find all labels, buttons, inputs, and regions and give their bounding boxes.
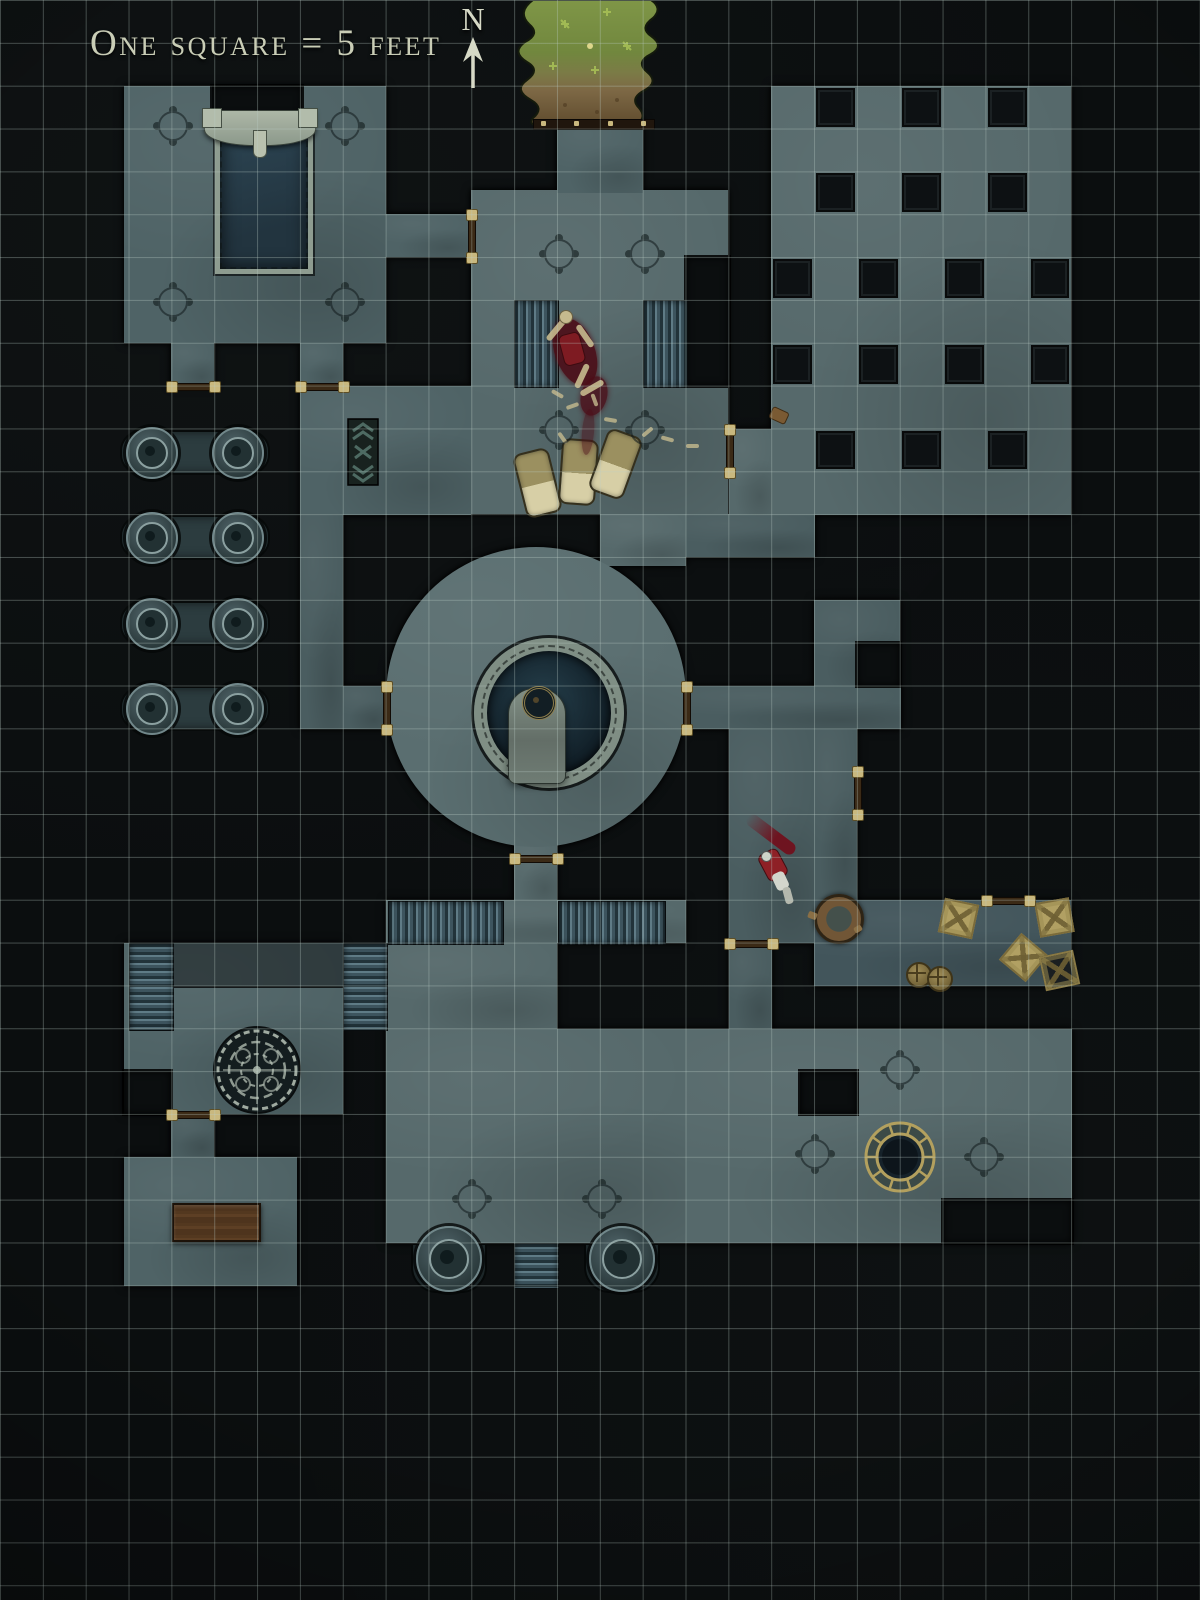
door-west-alcove-stud <box>166 381 178 393</box>
door-dais-east-stud <box>681 724 693 736</box>
door-storage-north-stud <box>981 895 993 907</box>
door-dais-west-stud <box>381 724 393 736</box>
square-pillar <box>818 175 853 210</box>
column-pillar-core <box>145 617 155 627</box>
bone <box>551 389 564 399</box>
dais-medallion-core <box>533 697 539 703</box>
threshold-stud <box>541 121 546 126</box>
square-pillar <box>990 433 1025 468</box>
door-southwest-stud <box>209 1109 221 1121</box>
floor-compass-ornament <box>587 1184 617 1214</box>
column-pillar-core <box>231 446 241 456</box>
door-dais-west-stud <box>381 681 393 693</box>
north-arrow-icon <box>460 36 486 90</box>
stairs-landing-west <box>388 901 504 945</box>
floor-compass-ornament <box>544 239 574 269</box>
door-barracks-east-stud <box>724 467 736 479</box>
threshold-stud <box>574 121 579 126</box>
well-room-se-notch <box>943 1200 1072 1243</box>
door-southwest-stud <box>166 1109 178 1121</box>
column-pillar-core <box>145 702 155 712</box>
entry-threshold <box>533 119 655 130</box>
square-pillar <box>947 261 982 296</box>
square-pillar <box>818 90 853 125</box>
square-pillar <box>904 433 939 468</box>
threshold-stud <box>608 121 613 126</box>
knight-legs <box>782 886 794 904</box>
threshold-stud <box>641 121 646 126</box>
door-east-alcove-stud <box>338 381 350 393</box>
square-pillar <box>947 347 982 382</box>
column-pillar-core <box>231 702 241 712</box>
floor-compass-ornament <box>457 1184 487 1214</box>
square-pillar <box>818 433 853 468</box>
door-west-alcove-stud <box>209 381 221 393</box>
square-pillar <box>990 90 1025 125</box>
square-pillar <box>990 175 1025 210</box>
dungeon-map: One square = 5 feet N <box>0 0 1200 1600</box>
column-pillar-core <box>145 446 155 456</box>
skeleton-skull <box>559 310 573 324</box>
door-well-room-stud <box>724 938 736 950</box>
door-storage-north-stud <box>1024 895 1036 907</box>
fountain-spout <box>253 130 267 158</box>
square-pillar <box>1033 261 1068 296</box>
mosaic-medallion <box>213 1026 301 1114</box>
barracks-ne-notch <box>686 257 729 386</box>
square-pillar <box>904 90 939 125</box>
door-dais-south-stud <box>509 853 521 865</box>
bone <box>604 417 617 423</box>
north-label: N <box>456 2 490 36</box>
floor-compass-ornament <box>330 287 360 317</box>
door-dais-east-stud <box>681 681 693 693</box>
dropped-satchel <box>768 406 790 425</box>
floor-compass-ornament <box>158 287 188 317</box>
dais-medallion <box>522 686 556 720</box>
dark-crate <box>1039 950 1081 992</box>
southwest-notch <box>124 1071 171 1114</box>
well-room-nw-notch <box>800 1071 857 1114</box>
grass-courtyard <box>505 0 670 128</box>
door-east-corridor-stud <box>852 809 864 821</box>
map-legend: One square = 5 feet <box>90 22 441 65</box>
patterned-rug <box>347 418 379 486</box>
fountain-post-left <box>202 108 222 128</box>
floor-compass-ornament <box>630 415 660 445</box>
square-pillar <box>861 347 896 382</box>
stairs-barracks-east <box>643 300 688 388</box>
stairs-south-exit <box>514 1243 559 1289</box>
floor-compass-ornament <box>800 1139 830 1169</box>
stairs-southwest-right <box>343 943 388 1031</box>
fountain-post-right <box>298 108 318 128</box>
mid-east-notch <box>857 643 900 686</box>
floor-compass-ornament <box>969 1142 999 1172</box>
door-east-corridor-stud <box>852 766 864 778</box>
square-pillar <box>904 175 939 210</box>
square-pillar <box>775 347 810 382</box>
door-dais-south-stud <box>552 853 564 865</box>
bone <box>686 444 699 448</box>
barrel-cross <box>916 964 918 982</box>
round-pillar-south-west-core <box>440 1250 454 1264</box>
floor-compass-ornament <box>544 415 574 445</box>
square-pillar <box>861 261 896 296</box>
square-pillar <box>1033 347 1068 382</box>
floor-compass-ornament <box>630 239 660 269</box>
stairs-southwest-left <box>129 943 174 1031</box>
door-connector-stud <box>466 209 478 221</box>
bedroll <box>512 447 564 520</box>
square-pillar <box>775 261 810 296</box>
knight-helm <box>761 851 772 862</box>
door-barracks-east-stud <box>724 424 736 436</box>
floor-compass-ornament <box>158 111 188 141</box>
floor-compass-ornament <box>330 111 360 141</box>
bone <box>566 402 580 410</box>
crate <box>938 898 980 940</box>
door-well-room-stud <box>767 938 779 950</box>
crate <box>1034 897 1075 938</box>
broken-barrel <box>814 894 864 944</box>
door-connector-stud <box>466 252 478 264</box>
barrel-cross <box>937 968 939 986</box>
round-well <box>864 1121 936 1193</box>
round-pillar-south-east-core <box>613 1250 627 1264</box>
floor-compass-ornament <box>885 1055 915 1085</box>
wooden-table <box>172 1203 261 1242</box>
bone <box>661 435 675 442</box>
barrel <box>927 966 953 992</box>
column-pillar-core <box>231 531 241 541</box>
column-pillar-core <box>231 617 241 627</box>
north-indicator: N <box>456 2 490 90</box>
column-pillar-core <box>145 531 155 541</box>
stairs-landing-east <box>558 901 666 945</box>
shadowed-ledge <box>171 943 343 988</box>
door-east-alcove-stud <box>295 381 307 393</box>
feature-layer <box>0 0 1200 1600</box>
scale-label: One square = 5 feet <box>90 23 441 64</box>
